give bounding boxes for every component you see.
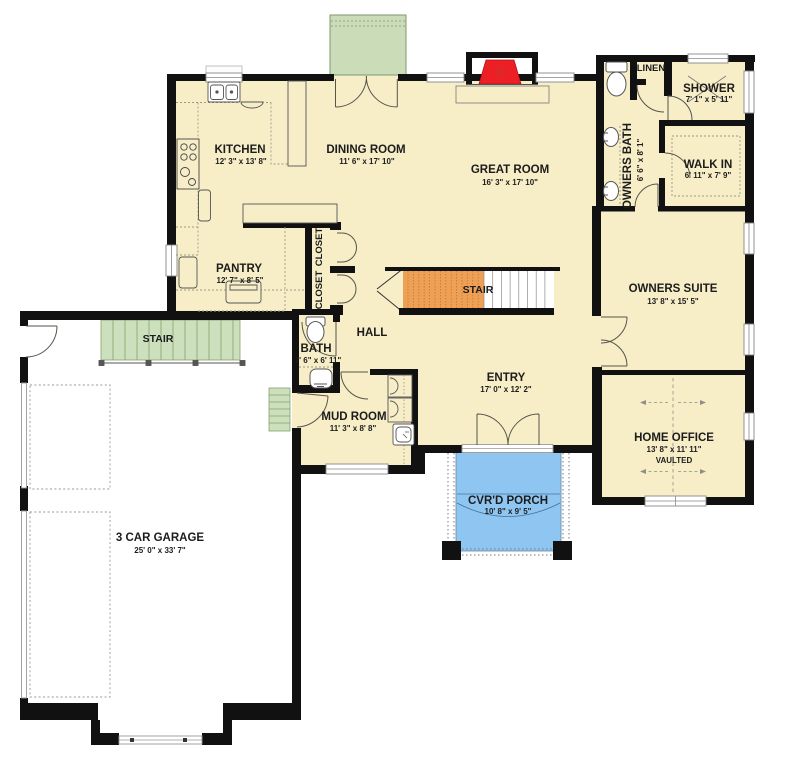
svg-text:LINEN: LINEN — [637, 63, 666, 74]
svg-text:STAIR: STAIR — [463, 284, 494, 296]
svg-text:12' 3" x 13' 8": 12' 3" x 13' 8" — [215, 157, 267, 166]
svg-text:OWNERS BATH: OWNERS BATH — [622, 123, 634, 209]
svg-text:10' 8" x 9' 5": 10' 8" x 9' 5" — [485, 507, 532, 516]
svg-text:13' 8" x 15' 5": 13' 8" x 15' 5" — [647, 297, 699, 306]
svg-text:OWNERS SUITE: OWNERS SUITE — [629, 283, 718, 295]
svg-text:11' 6" x 17' 10": 11' 6" x 17' 10" — [339, 157, 395, 166]
svg-text:12' 7" x 8' 5": 12' 7" x 8' 5" — [217, 276, 264, 285]
svg-text:HALL: HALL — [357, 327, 388, 339]
svg-text:KITCHEN: KITCHEN — [214, 144, 265, 156]
svg-text:BATH: BATH — [300, 343, 331, 355]
svg-text:DINING ROOM: DINING ROOM — [326, 144, 405, 156]
svg-text:6' 6" x 8' 1": 6' 6" x 8' 1" — [636, 139, 645, 182]
svg-text:13' 8" x 11' 11": 13' 8" x 11' 11" — [647, 445, 702, 454]
svg-text:3 CAR GARAGE: 3 CAR GARAGE — [116, 532, 205, 544]
svg-text:WALK IN: WALK IN — [684, 159, 733, 171]
svg-text:VAULTED: VAULTED — [656, 456, 693, 465]
svg-text:7' 1" x 5' 11": 7' 1" x 5' 11" — [686, 95, 733, 104]
svg-text:GREAT ROOM: GREAT ROOM — [471, 164, 549, 176]
svg-text:17' 0" x 12' 2": 17' 0" x 12' 2" — [480, 385, 532, 394]
svg-text:SHOWER: SHOWER — [683, 83, 735, 95]
svg-text:ENTRY: ENTRY — [487, 372, 526, 384]
svg-text:16' 3" x 17' 10": 16' 3" x 17' 10" — [482, 178, 538, 187]
svg-text:6' 11" x 7' 9": 6' 11" x 7' 9" — [685, 171, 732, 180]
svg-text:HOME OFFICE: HOME OFFICE — [634, 432, 714, 444]
svg-text:CLOSET: CLOSET — [314, 271, 325, 310]
svg-text:PANTRY: PANTRY — [216, 263, 262, 275]
svg-text:CVR'D PORCH: CVR'D PORCH — [468, 495, 548, 507]
svg-text:CLOSET: CLOSET — [314, 228, 325, 267]
svg-text:STAIR: STAIR — [143, 333, 174, 345]
svg-text:25' 0" x 33' 7": 25' 0" x 33' 7" — [134, 546, 186, 555]
svg-text:11' 3" x 8' 8": 11' 3" x 8' 8" — [330, 424, 377, 433]
svg-text:7' 6" x 6' 11": 7' 6" x 6' 11" — [295, 356, 342, 365]
svg-text:MUD ROOM: MUD ROOM — [321, 411, 386, 423]
